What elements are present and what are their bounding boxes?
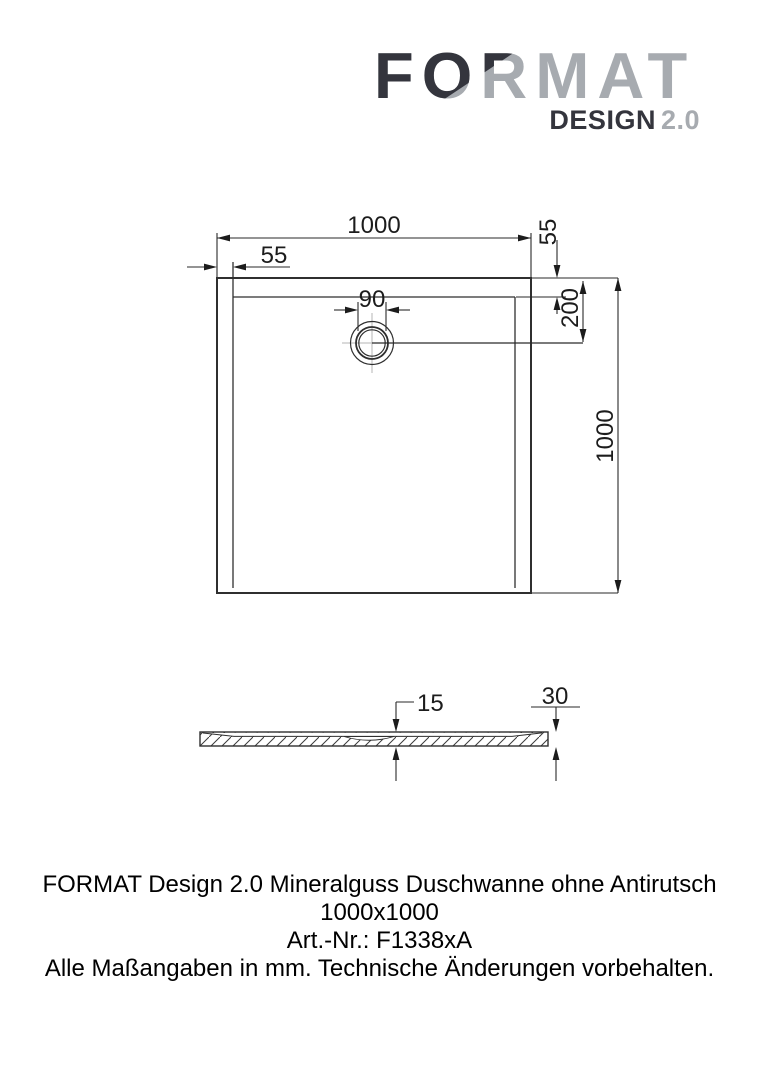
caption-note: Alle Maßangaben in mm. Technische Änderu… <box>0 955 759 983</box>
dim-width-top: 1000 <box>217 212 531 241</box>
plan-view: 1000 55 55 90 <box>187 212 621 593</box>
tray-outer-edge <box>217 278 531 593</box>
dim-rim-right-value: 55 <box>535 219 562 246</box>
section-view: 15 30 <box>200 683 580 781</box>
dim-inner-depth-value: 15 <box>417 690 444 717</box>
dim-drain-diameter-value: 90 <box>359 286 386 313</box>
dim-height-right: 1000 <box>592 278 621 593</box>
caption-article-number: Art.-Nr.: F1338xA <box>0 927 759 955</box>
basin-floor-strip <box>234 733 512 736</box>
dim-width-top-value: 1000 <box>347 212 400 239</box>
footer-caption: FORMAT Design 2.0 Mineralguss Duschwanne… <box>0 871 759 983</box>
dim-drain-offset: 200 <box>557 281 586 342</box>
plan-extension-lines <box>217 233 618 593</box>
dim-drain-offset-value: 200 <box>557 288 584 328</box>
dim-height-right-value: 1000 <box>592 409 619 462</box>
dim-rim-left: 55 <box>187 242 290 270</box>
caption-product: FORMAT Design 2.0 Mineralguss Duschwanne… <box>0 871 759 927</box>
dim-rim-left-value: 55 <box>261 242 288 269</box>
dim-total-height-value: 30 <box>542 683 569 710</box>
